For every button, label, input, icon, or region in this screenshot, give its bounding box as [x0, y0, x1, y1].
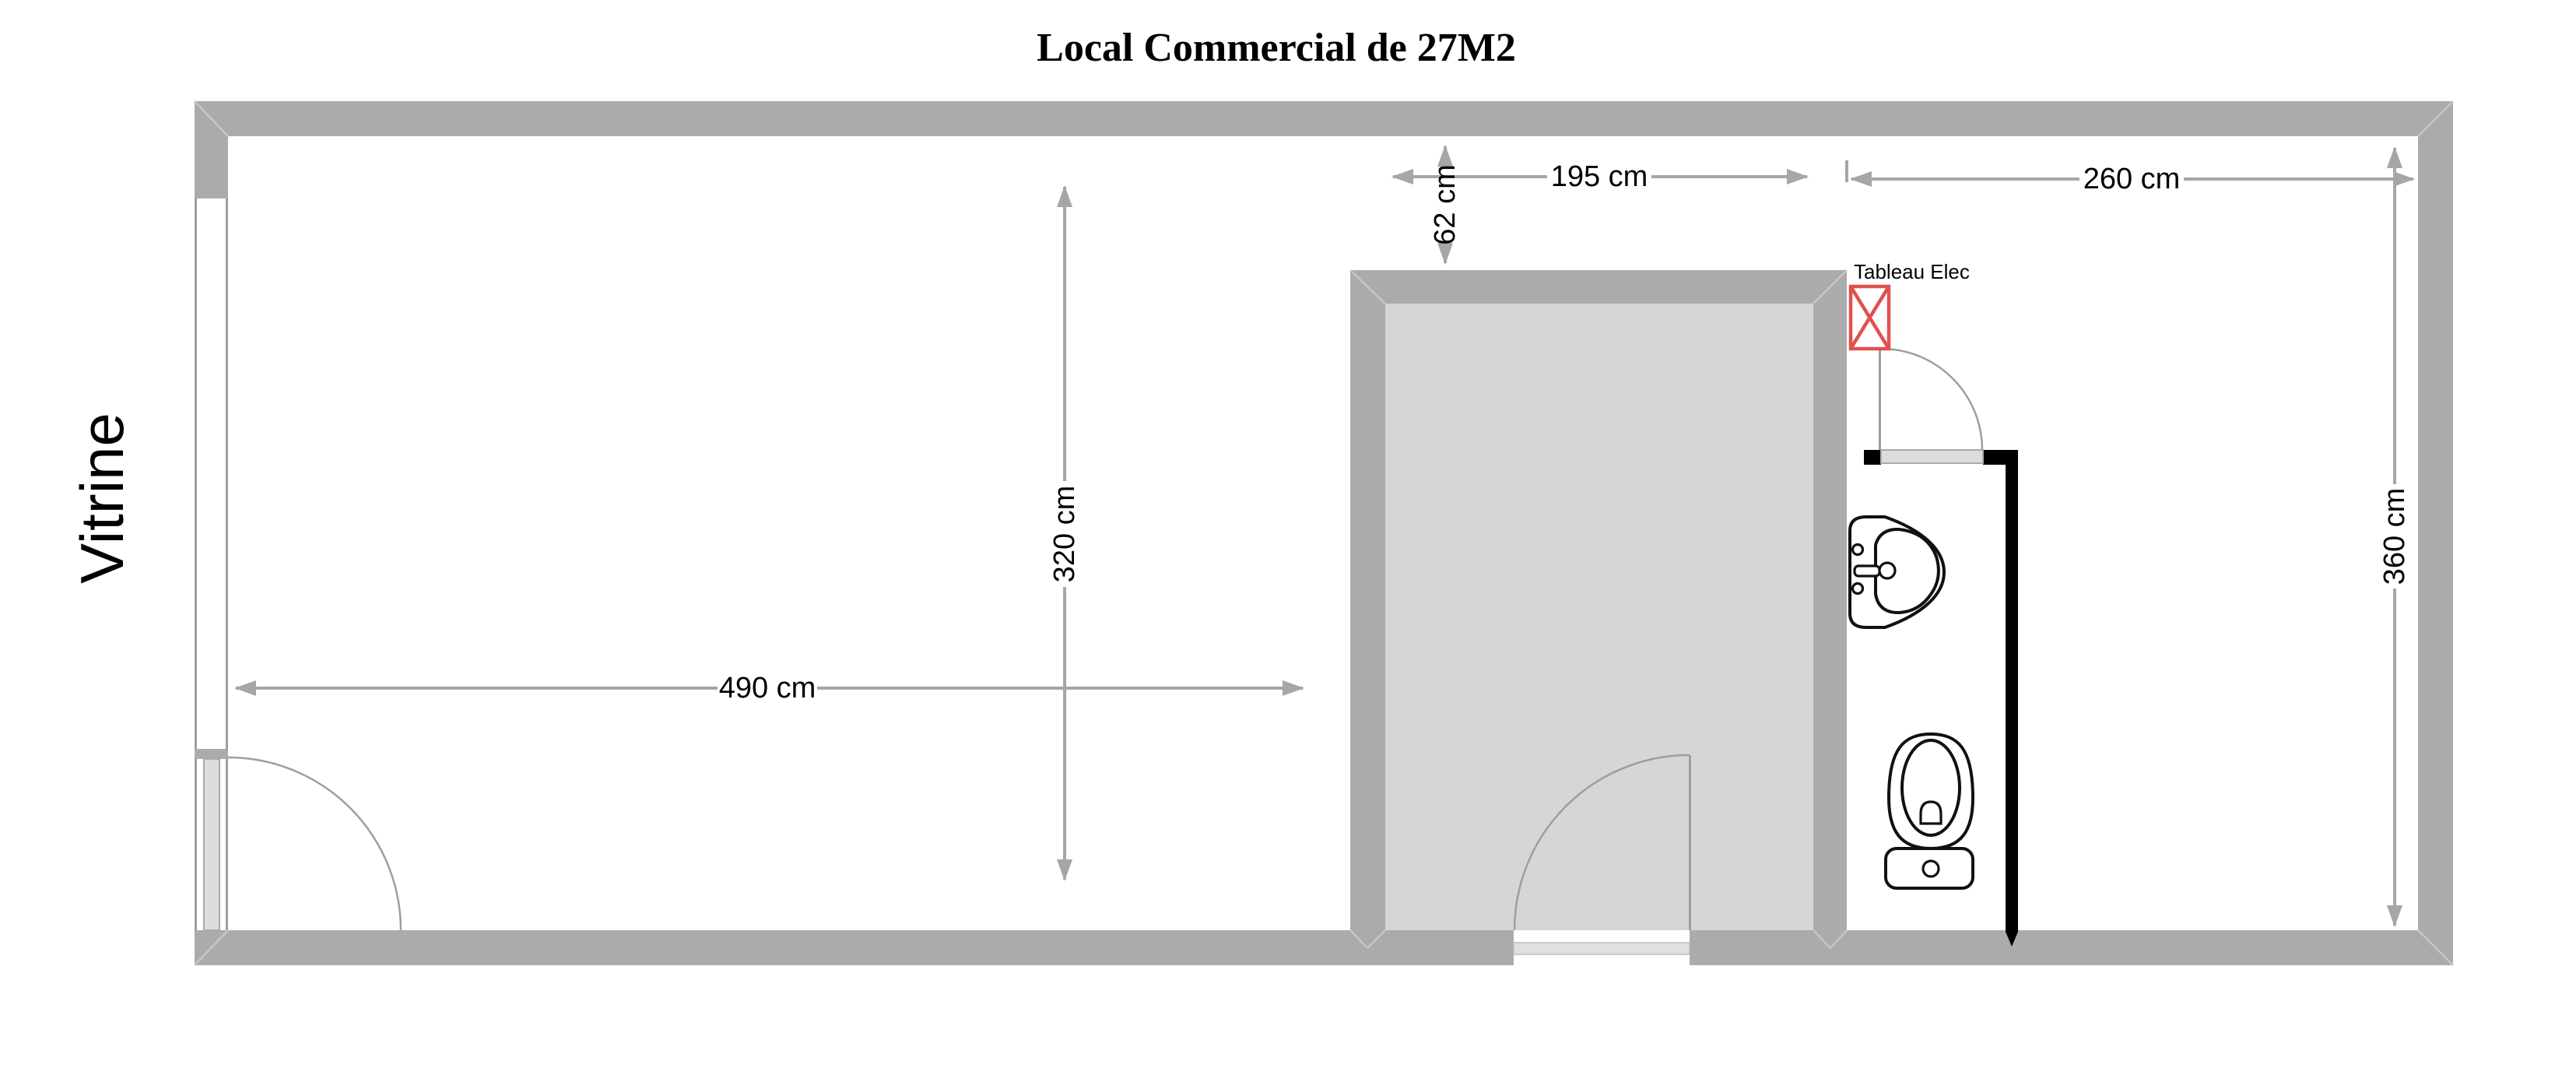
toilet-button — [1923, 861, 1939, 877]
wc-door — [1879, 349, 1983, 463]
sink-drain — [1879, 563, 1895, 578]
dimension-490-label: 490 cm — [719, 672, 816, 704]
floor-plan: Local Commercial de 27M2 Vitrine — [0, 0, 2576, 1068]
storage-wall-right — [1813, 304, 1847, 930]
toilet-icon — [1886, 734, 1973, 888]
dimension-62: 62 cm — [1429, 146, 1462, 263]
wall-left-stub — [195, 101, 228, 198]
storage-wall-top — [1350, 270, 1847, 304]
dimension-360: 360 cm — [2378, 148, 2411, 926]
dimension-320-label: 320 cm — [1048, 486, 1081, 583]
dimension-260: 260 cm — [1847, 160, 2413, 195]
storage-floor — [1385, 304, 1813, 930]
wc-door-open-leaf-line — [1879, 349, 1881, 450]
wall-right — [2418, 101, 2453, 965]
storage-wall-left — [1350, 304, 1385, 930]
dimension-260-label: 260 cm — [2083, 163, 2181, 195]
sink-tap-left — [1853, 545, 1863, 555]
sink-icon — [1850, 517, 1944, 627]
vitrine-outer-line — [195, 198, 197, 749]
dimension-320: 320 cm — [1048, 187, 1081, 880]
dimension-62-label: 62 cm — [1429, 164, 1462, 244]
vitrine-label: Vitrine — [68, 413, 136, 584]
outer-walls — [195, 101, 2453, 965]
page-title: Local Commercial de 27M2 — [1037, 26, 1516, 70]
electrical-panel-label: Tableau Elec — [1854, 260, 1970, 283]
dimension-360-label: 360 cm — [2378, 488, 2411, 585]
storage-room — [1350, 270, 1847, 965]
wc-partition-stub-left — [1864, 450, 1881, 465]
dimension-195-label: 195 cm — [1551, 160, 1648, 193]
wall-corner-mitres — [195, 101, 2453, 965]
wc-area: Tableau Elec — [1850, 260, 2018, 947]
wc-door-swing-arc — [1881, 349, 1982, 450]
entrance-door — [195, 757, 401, 930]
wc-partition-vertical — [2006, 450, 2018, 932]
entrance-door-jamb-inner — [226, 759, 228, 930]
entrance-door-swing-arc — [228, 757, 401, 930]
electrical-panel: Tableau Elec — [1851, 260, 1970, 349]
wall-bottom — [195, 930, 2453, 965]
sink-tap-right — [1853, 584, 1863, 594]
entrance-door-leaf — [204, 759, 219, 930]
vitrine-inner-line — [226, 198, 228, 749]
wc-door-leaf — [1881, 450, 1983, 463]
wall-top — [195, 101, 2453, 136]
entrance-door-jamb-outer — [195, 759, 197, 930]
vitrine-window — [195, 198, 228, 759]
storage-door-threshold — [1514, 943, 1690, 954]
sink-faucet-bar — [1855, 566, 1879, 576]
dimension-490: 490 cm — [236, 672, 1303, 704]
storage-door-open-leaf-line — [1689, 755, 1691, 930]
vitrine-end-stub — [195, 749, 228, 759]
